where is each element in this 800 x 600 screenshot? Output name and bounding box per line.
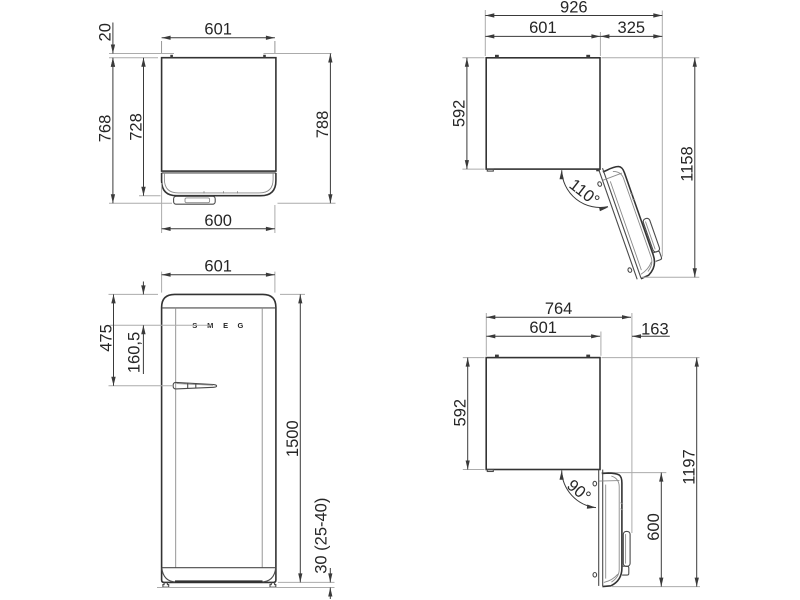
svg-text:163: 163 [641,320,669,338]
svg-text:601: 601 [204,20,232,38]
svg-text:1158: 1158 [679,146,697,181]
svg-text:728: 728 [127,113,145,141]
svg-text:764: 764 [545,300,573,318]
svg-text:30 (25-40): 30 (25-40) [313,498,331,574]
svg-text:160,5: 160,5 [126,332,144,373]
svg-text:601: 601 [204,257,232,275]
svg-text:600: 600 [645,513,663,541]
svg-text:G: G [238,321,244,330]
svg-text:592: 592 [451,100,469,128]
svg-text:926: 926 [560,0,588,17]
svg-text:592: 592 [452,399,470,427]
svg-text:1500: 1500 [284,420,302,457]
svg-text:788: 788 [314,111,332,139]
svg-text:1197: 1197 [681,449,699,484]
svg-text:600: 600 [204,212,232,230]
svg-text:768: 768 [97,115,115,143]
svg-text:20: 20 [97,23,115,41]
svg-text:601: 601 [529,19,557,37]
svg-text:E: E [223,321,228,330]
svg-text:475: 475 [97,324,115,352]
svg-text:601: 601 [529,319,557,337]
svg-text:325: 325 [618,19,646,37]
